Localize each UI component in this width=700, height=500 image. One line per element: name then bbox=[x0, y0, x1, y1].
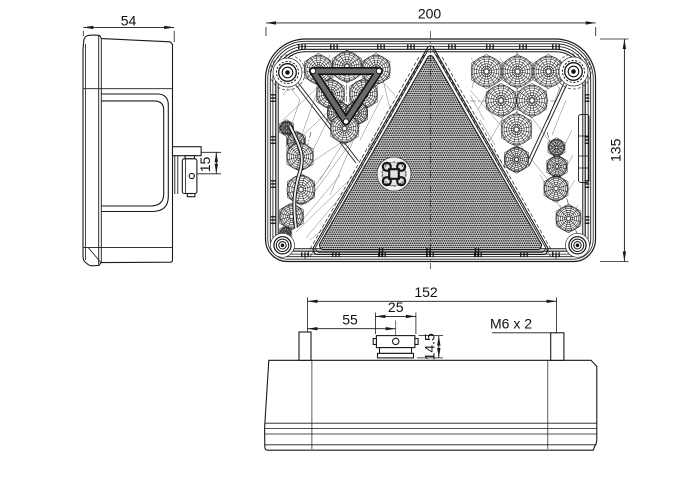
svg-text:25: 25 bbox=[388, 299, 404, 315]
svg-text:55: 55 bbox=[342, 311, 358, 327]
svg-text:54: 54 bbox=[121, 12, 137, 28]
svg-text:152: 152 bbox=[414, 284, 438, 300]
svg-text:135: 135 bbox=[608, 138, 624, 162]
svg-text:M6 x 2: M6 x 2 bbox=[490, 315, 532, 331]
svg-text:15: 15 bbox=[197, 157, 213, 173]
svg-text:200: 200 bbox=[418, 6, 442, 22]
svg-text:14.5: 14.5 bbox=[422, 333, 438, 360]
